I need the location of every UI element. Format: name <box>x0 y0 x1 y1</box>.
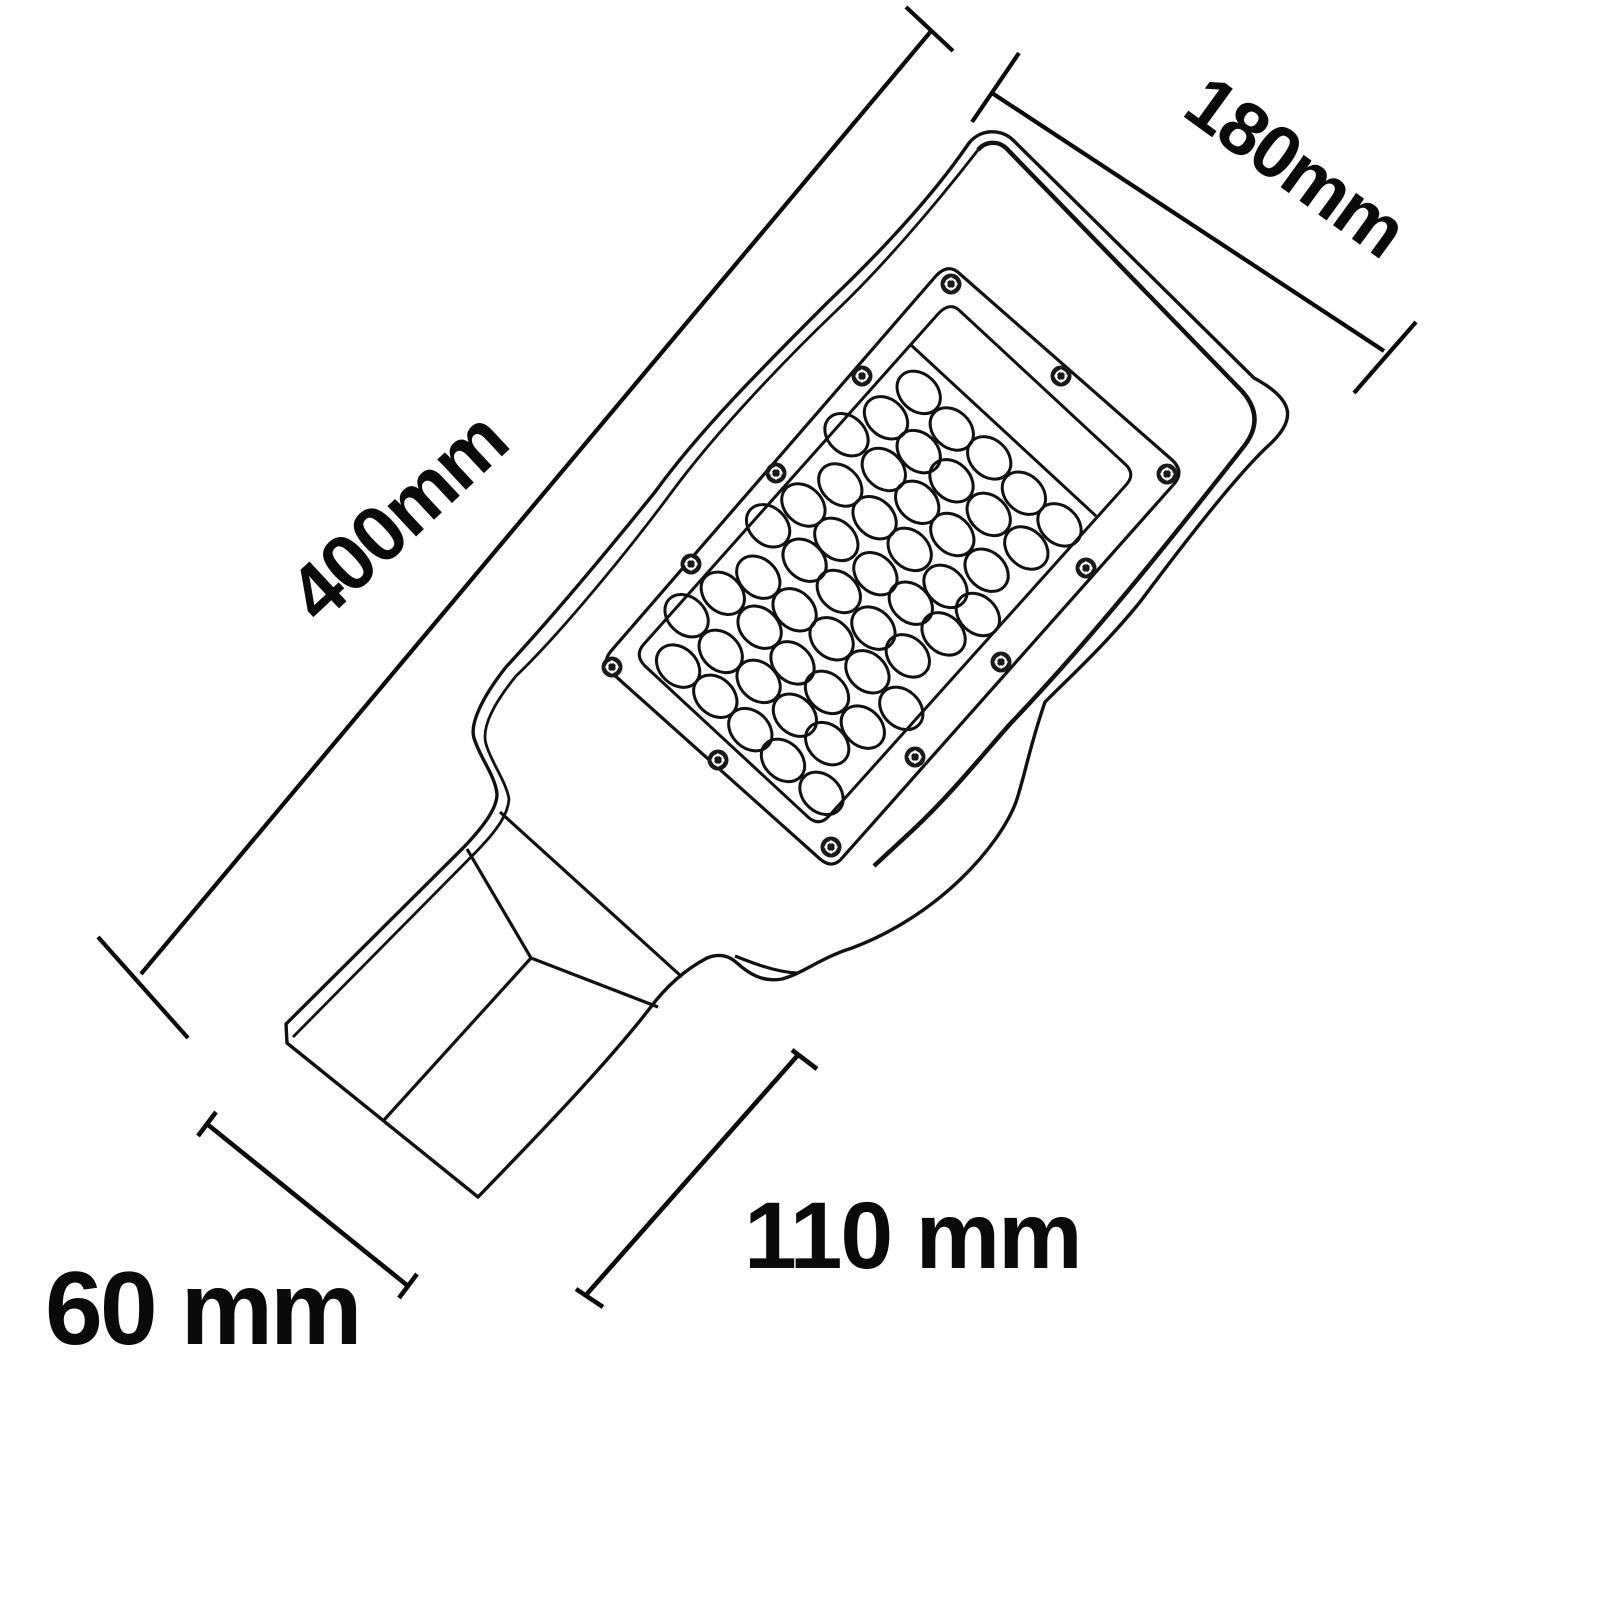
svg-text:60 mm: 60 mm <box>45 1251 360 1367</box>
svg-text:110 mm: 110 mm <box>744 1183 1081 1289</box>
